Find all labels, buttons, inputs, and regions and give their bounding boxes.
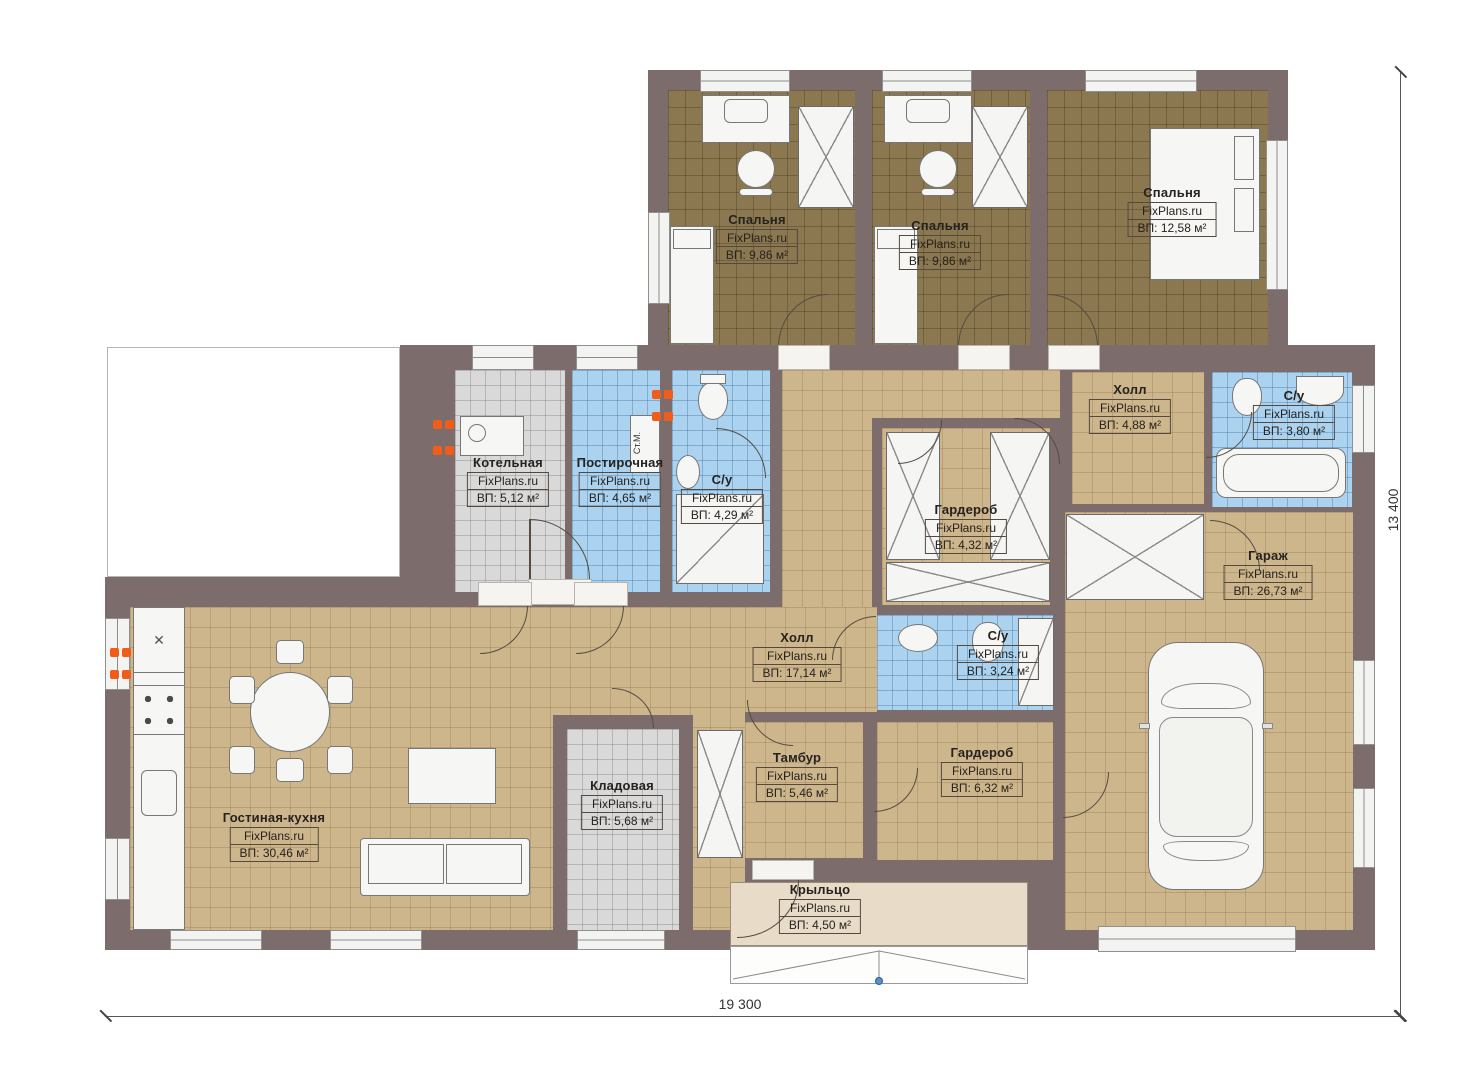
room-info-box: FixPlans.ru ВП: 5,46 м² — [756, 767, 838, 802]
window-living-1 — [170, 930, 262, 950]
dining-chair-icon — [327, 676, 353, 704]
room-area: ВП: 6,32 м² — [942, 779, 1022, 796]
printer-icon — [724, 99, 768, 123]
car-rear-window — [1163, 841, 1249, 861]
hall-upper-top-floor — [782, 370, 1060, 418]
dining-chair-icon — [229, 676, 255, 704]
room-area: ВП: 30,46 м² — [231, 844, 318, 861]
dining-chair-icon — [327, 746, 353, 774]
room-area: ВП: 9,86 м² — [900, 252, 980, 269]
stove-icon — [133, 685, 185, 735]
dining-chair-icon — [276, 640, 304, 664]
room-area: ВП: 17,14 м² — [754, 664, 841, 681]
sofa-cushion-icon — [368, 844, 444, 884]
car-mirror-icon — [1139, 723, 1150, 729]
dining-chair-icon — [276, 758, 304, 782]
room-name: Спальня — [1128, 185, 1217, 200]
room-name: Холл — [1089, 382, 1171, 397]
pillow-icon — [673, 229, 711, 249]
dining-chair-icon — [229, 746, 255, 774]
window-bedroom-2 — [882, 70, 972, 92]
door-opening-bedroom-3 — [1048, 345, 1100, 370]
dimension-line-right — [1400, 72, 1401, 1016]
room-info-box: FixPlans.ru ВП: 26,73 м² — [1224, 565, 1313, 600]
room-info-box: FixPlans.ru ВП: 6,32 м² — [941, 762, 1023, 797]
sink-icon — [898, 624, 938, 652]
room-area: ВП: 4,29 м² — [682, 506, 762, 523]
room-info-box: FixPlans.ru ВП: 3,24 м² — [957, 645, 1039, 680]
room-label-laundry: Постирочная FixPlans.ru ВП: 4,65 м² — [577, 455, 664, 507]
room-label-wardrobe-432: Гардероб FixPlans.ru ВП: 4,32 м² — [925, 502, 1007, 554]
porch-steps — [730, 946, 1028, 988]
door-opening-bedroom-1 — [778, 345, 830, 370]
heater-vent-icon — [110, 670, 119, 679]
room-label-porch: Крыльцо FixPlans.ru ВП: 4,50 м² — [779, 882, 861, 934]
watermark: FixPlans.ru — [780, 900, 860, 916]
room-name: С/у — [1253, 388, 1335, 403]
room-area: ВП: 4,32 м² — [926, 536, 1006, 553]
room-area: ВП: 9,86 м² — [717, 246, 797, 263]
door-opening-boiler — [478, 582, 532, 606]
watermark: FixPlans.ru — [580, 473, 660, 489]
terrace-area — [107, 347, 400, 577]
bathtub-basin-icon — [1223, 454, 1339, 492]
room-area: ВП: 3,80 м² — [1254, 422, 1334, 439]
watermark: FixPlans.ru — [582, 796, 662, 812]
door-opening-bedroom-2 — [958, 345, 1010, 370]
window-bedroom-1 — [700, 70, 790, 92]
dimension-height-label: 13 400 — [1385, 489, 1401, 532]
wardrobe-icon — [798, 106, 854, 208]
room-area: ВП: 3,24 м² — [958, 662, 1038, 679]
room-name: Тамбур — [756, 750, 838, 765]
watermark: FixPlans.ru — [1254, 406, 1334, 422]
room-info-box: FixPlans.ru ВП: 12,58 м² — [1128, 202, 1217, 237]
room-name: С/у — [957, 628, 1039, 643]
room-info-box: FixPlans.ru ВП: 4,50 м² — [779, 899, 861, 934]
room-name: Спальня — [716, 212, 798, 227]
room-label-storage: Кладовая FixPlans.ru ВП: 5,68 м² — [581, 778, 663, 830]
car-top-view — [1148, 642, 1264, 890]
dimension-line-bottom — [105, 1016, 1400, 1017]
room-name: Котельная — [467, 455, 549, 470]
wall-storage-right — [679, 715, 693, 930]
chair-icon — [919, 150, 957, 188]
watermark: FixPlans.ru — [1090, 400, 1170, 416]
coffee-table-icon — [408, 748, 496, 804]
room-area: ВП: 12,58 м² — [1129, 219, 1216, 236]
boiler-dial-icon — [468, 424, 486, 442]
room-name: Гостиная-кухня — [223, 810, 325, 825]
floor-plan-canvas: Ст.М. ✕ — [0, 0, 1474, 1080]
watermark: FixPlans.ru — [958, 646, 1038, 662]
watermark: FixPlans.ru — [682, 490, 762, 506]
room-area: ВП: 4,65 м² — [580, 489, 660, 506]
watermark: FixPlans.ru — [468, 473, 548, 489]
room-name: Крыльцо — [779, 882, 861, 897]
room-name: Гараж — [1224, 548, 1313, 563]
watermark: FixPlans.ru — [754, 648, 841, 664]
room-label-wardrobe-632: Гардероб FixPlans.ru ВП: 6,32 м² — [941, 745, 1023, 797]
pillow-icon — [1234, 188, 1254, 232]
room-info-box: FixPlans.ru ВП: 4,65 м² — [579, 472, 661, 507]
watermark: FixPlans.ru — [757, 768, 837, 784]
room-label-bathroom-429: С/у FixPlans.ru ВП: 4,29 м² — [681, 472, 763, 524]
closet-icon — [697, 730, 743, 858]
room-area: ВП: 26,73 м² — [1225, 582, 1312, 599]
room-info-box: FixPlans.ru ВП: 4,32 м² — [925, 519, 1007, 554]
wardrobe-icon — [972, 106, 1028, 208]
room-info-box: FixPlans.ru ВП: 9,86 м² — [899, 235, 981, 270]
chair-back-icon — [921, 188, 955, 196]
printer-icon — [906, 99, 950, 123]
watermark: FixPlans.ru — [717, 230, 797, 246]
room-name: Холл — [753, 630, 842, 645]
car-cabin — [1159, 717, 1253, 837]
room-area: ВП: 4,88 м² — [1090, 416, 1170, 433]
room-area: ВП: 5,12 м² — [468, 489, 548, 506]
dining-table-icon — [250, 672, 330, 752]
door-opening-laundry — [574, 582, 628, 606]
room-name: С/у — [681, 472, 763, 487]
room-label-boiler: Котельная FixPlans.ru ВП: 5,12 м² — [467, 455, 549, 507]
watermark: FixPlans.ru — [1129, 203, 1216, 219]
window-storage — [577, 930, 665, 950]
watermark: FixPlans.ru — [942, 763, 1022, 779]
sofa-cushion-icon — [446, 844, 522, 884]
room-name: Гардероб — [941, 745, 1023, 760]
window-bedroom-1-side — [648, 212, 670, 304]
window-bathroom-380 — [1352, 385, 1375, 453]
heater-vent-icon — [433, 420, 442, 429]
room-info-box: FixPlans.ru ВП: 4,29 м² — [681, 489, 763, 524]
room-area: ВП: 5,46 м² — [757, 784, 837, 801]
door-leaf-terrace — [529, 519, 531, 579]
room-area: ВП: 4,50 м² — [780, 916, 860, 933]
window-laundry — [576, 345, 638, 370]
room-label-bathroom-380: С/у FixPlans.ru ВП: 3,80 м² — [1253, 388, 1335, 440]
car-mirror-icon — [1262, 723, 1273, 729]
washing-machine-label: Ст.М. — [632, 432, 642, 454]
room-label-bathroom-324: С/у FixPlans.ru ВП: 3,24 м² — [957, 628, 1039, 680]
room-label-vestibule: Тамбур FixPlans.ru ВП: 5,46 м² — [756, 750, 838, 802]
car-windshield — [1161, 683, 1251, 709]
watermark: FixPlans.ru — [231, 828, 318, 844]
wall-terrace-column — [400, 345, 425, 577]
watermark: FixPlans.ru — [926, 520, 1006, 536]
window-living-side — [105, 838, 130, 900]
room-label-garage: Гараж FixPlans.ru ВП: 26,73 м² — [1224, 548, 1313, 600]
window-boiler — [472, 345, 534, 370]
room-label-living-kitchen: Гостиная-кухня FixPlans.ru ВП: 30,46 м² — [223, 810, 325, 862]
window-bedroom-3-side — [1266, 140, 1288, 290]
room-name: Кладовая — [581, 778, 663, 793]
heater-vent-icon — [433, 446, 442, 455]
dimension-width-label: 19 300 — [719, 996, 762, 1012]
room-label-hall-488: Холл FixPlans.ru ВП: 4,88 м² — [1089, 382, 1171, 434]
room-name: Постирочная — [577, 455, 664, 470]
room-info-box: FixPlans.ru ВП: 30,46 м² — [230, 827, 319, 862]
room-label-bedroom-2: Спальня FixPlans.ru ВП: 9,86 м² — [899, 218, 981, 270]
chair-back-icon — [739, 188, 773, 196]
heater-vent-icon — [652, 412, 661, 421]
kitchen-hood-icon: ✕ — [133, 607, 185, 673]
toilet-icon — [698, 382, 728, 420]
room-info-box: FixPlans.ru ВП: 9,86 м² — [716, 229, 798, 264]
room-info-box: FixPlans.ru ВП: 5,12 м² — [467, 472, 549, 507]
kitchen-sink-icon — [141, 770, 177, 816]
toilet-tank-icon — [700, 374, 726, 384]
room-area: ВП: 5,68 м² — [582, 812, 662, 829]
window-bedroom-3 — [1085, 70, 1197, 92]
closet-icon — [1066, 514, 1204, 600]
room-info-box: FixPlans.ru ВП: 3,80 м² — [1253, 405, 1335, 440]
wall-storage-left — [553, 715, 567, 930]
watermark: FixPlans.ru — [900, 236, 980, 252]
heater-vent-icon — [652, 390, 661, 399]
dimension-tick — [1395, 66, 1407, 78]
room-label-hall-1714: Холл FixPlans.ru ВП: 17,14 м² — [753, 630, 842, 682]
pillow-icon — [1234, 136, 1254, 180]
window-garage-2 — [1353, 788, 1375, 868]
window-living-2 — [330, 930, 422, 950]
door-opening-entrance — [752, 860, 814, 880]
room-info-box: FixPlans.ru ВП: 5,68 м² — [581, 795, 663, 830]
room-label-bedroom-1: Спальня FixPlans.ru ВП: 9,86 м² — [716, 212, 798, 264]
room-label-bedroom-3: Спальня FixPlans.ru ВП: 12,58 м² — [1128, 185, 1217, 237]
window-garage-1 — [1353, 660, 1375, 745]
heater-vent-icon — [110, 648, 119, 657]
room-name: Гардероб — [925, 502, 1007, 517]
room-info-box: FixPlans.ru ВП: 4,88 м² — [1089, 399, 1171, 434]
room-name: Спальня — [899, 218, 981, 233]
chair-icon — [737, 150, 775, 188]
watermark: FixPlans.ru — [1225, 566, 1312, 582]
room-info-box: FixPlans.ru ВП: 17,14 м² — [753, 647, 842, 682]
wardrobe-icon — [886, 562, 1050, 602]
garage-gate — [1098, 926, 1296, 952]
